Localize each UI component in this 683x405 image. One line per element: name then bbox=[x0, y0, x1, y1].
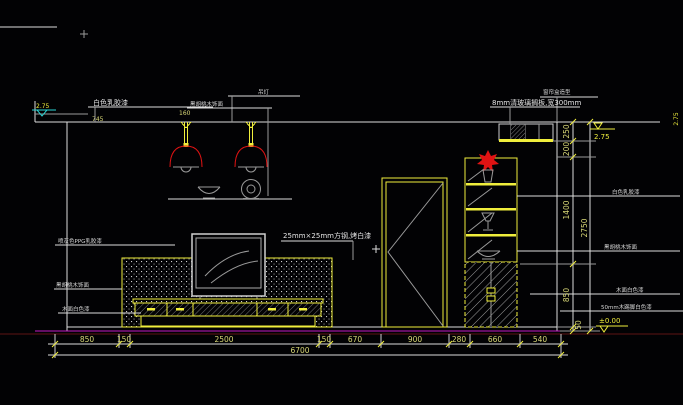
dim-right: 200 bbox=[562, 142, 571, 157]
lamp-shade-icon bbox=[235, 146, 267, 167]
label-walnut-left: 黑胡桃木饰面 bbox=[54, 281, 122, 289]
drawing-canvas: 2.75 745 160 白色乳胶漆 吊灯 黑胡桃木饰面 bbox=[0, 0, 683, 405]
dim-bottom: 2500 bbox=[214, 335, 233, 344]
label-steel-frame: 25mm×25mm方钢,烤白漆 bbox=[281, 231, 371, 260]
svg-text:木面白色漆: 木面白色漆 bbox=[616, 286, 644, 294]
dim-bottom: 280 bbox=[452, 335, 467, 344]
svg-text:喷灰色PPG乳胶漆: 喷灰色PPG乳胶漆 bbox=[58, 237, 102, 245]
right-dimension-chain: 250 200 1400 850 50 2750 bbox=[520, 119, 600, 334]
dim-bottom-total: 6700 bbox=[290, 346, 309, 355]
svg-text:吊灯: 吊灯 bbox=[258, 88, 270, 96]
label-walnut-right: 黑胡桃木饰面 bbox=[517, 243, 680, 251]
dim-right-total: 2750 bbox=[580, 218, 589, 237]
glass-shelf-unit bbox=[499, 124, 553, 142]
cabinet-handle-icon bbox=[487, 296, 495, 301]
drawer-handle-icon bbox=[176, 308, 184, 311]
svg-text:2.75: 2.75 bbox=[594, 133, 610, 141]
room-shell bbox=[0, 101, 683, 334]
svg-text:±0.00: ±0.00 bbox=[599, 317, 620, 325]
elevation-value: 2.75 bbox=[36, 103, 50, 110]
dim-right: 50 bbox=[574, 320, 583, 330]
level-triangle-icon bbox=[37, 110, 47, 116]
tv-cabinet bbox=[133, 299, 323, 326]
svg-text:白色乳胶漆: 白色乳胶漆 bbox=[93, 98, 128, 107]
drawer-handle-icon bbox=[147, 308, 155, 311]
svg-text:黑胡桃木饰面: 黑胡桃木饰面 bbox=[604, 243, 638, 251]
tv bbox=[192, 234, 265, 299]
cabinet-body bbox=[135, 303, 321, 316]
ceiling-elevation-marker: 2.75 bbox=[590, 123, 615, 141]
lamp-shade-icon bbox=[170, 146, 202, 167]
svg-text:窗帘盒造型: 窗帘盒造型 bbox=[543, 88, 571, 96]
label-ceiling-paint-right: 白色乳胶漆 bbox=[517, 188, 680, 196]
svg-text:白色乳胶漆: 白色乳胶漆 bbox=[612, 188, 640, 196]
construction-marks bbox=[0, 27, 88, 38]
pendant-lamp-right bbox=[235, 122, 267, 172]
label-skirting: 50mm木踢脚白色漆 bbox=[560, 303, 683, 311]
level-triangle-icon bbox=[600, 326, 608, 332]
decor-bowl-icon bbox=[198, 187, 220, 198]
cabinet-plinth bbox=[141, 316, 315, 326]
wall-shelf bbox=[168, 180, 292, 200]
dim-bottom: 540 bbox=[533, 335, 548, 344]
level-triangle-icon bbox=[594, 123, 602, 129]
edge-elevation: 2.75 bbox=[673, 112, 680, 126]
svg-text:8mm清玻璃搁板,宽300mm: 8mm清玻璃搁板,宽300mm bbox=[492, 98, 581, 107]
ceiling-dim: 160 bbox=[179, 110, 191, 117]
lamp-bulb-icon bbox=[246, 167, 256, 172]
svg-text:黑胡桃木饰面: 黑胡桃木饰面 bbox=[190, 100, 224, 108]
dim-bottom: 150 bbox=[117, 335, 132, 344]
bottom-dimension-chain: 850 150 2500 150 670 900 280 660 540 670… bbox=[48, 334, 568, 358]
display-unit bbox=[465, 150, 517, 327]
dim-bottom: 900 bbox=[408, 335, 423, 344]
drawer-handle-icon bbox=[268, 308, 276, 311]
dim-bottom: 660 bbox=[488, 335, 503, 344]
svg-text:木面白色漆: 木面白色漆 bbox=[62, 305, 90, 313]
label-wood-white-right: 木面白色漆 bbox=[530, 286, 680, 294]
door bbox=[372, 178, 447, 327]
decor-plate-icon bbox=[242, 180, 261, 199]
lamp-bulb-icon bbox=[181, 167, 191, 172]
label-pendant-lamp: 吊灯 bbox=[228, 88, 300, 122]
label-ppg-paint: 喷灰色PPG乳胶漆 bbox=[55, 237, 175, 245]
cabinet-handle-icon bbox=[487, 288, 495, 293]
cad-elevation-drawing: 2.75 745 160 白色乳胶漆 吊灯 黑胡桃木饰面 bbox=[0, 0, 683, 405]
dim-bottom: 670 bbox=[348, 335, 363, 344]
dim-right: 850 bbox=[562, 288, 571, 303]
svg-text:25mm×25mm方钢,烤白漆: 25mm×25mm方钢,烤白漆 bbox=[283, 231, 371, 240]
svg-text:50mm木踢脚白色漆: 50mm木踢脚白色漆 bbox=[601, 303, 652, 311]
label-glass-shelf: 8mm清玻璃搁板,宽300mm bbox=[490, 98, 581, 124]
svg-text:黑胡桃木饰面: 黑胡桃木饰面 bbox=[56, 281, 90, 289]
dim-bottom: 850 bbox=[80, 335, 95, 344]
drawer-handle-icon bbox=[299, 308, 307, 311]
dim-bottom: 150 bbox=[317, 335, 332, 344]
ceiling-dim: 745 bbox=[92, 116, 104, 123]
floor-elevation-marker: ±0.00 bbox=[596, 317, 628, 332]
dim-right: 250 bbox=[562, 124, 571, 139]
dim-right: 1400 bbox=[562, 200, 571, 219]
pendant-lamp-left bbox=[170, 122, 202, 172]
